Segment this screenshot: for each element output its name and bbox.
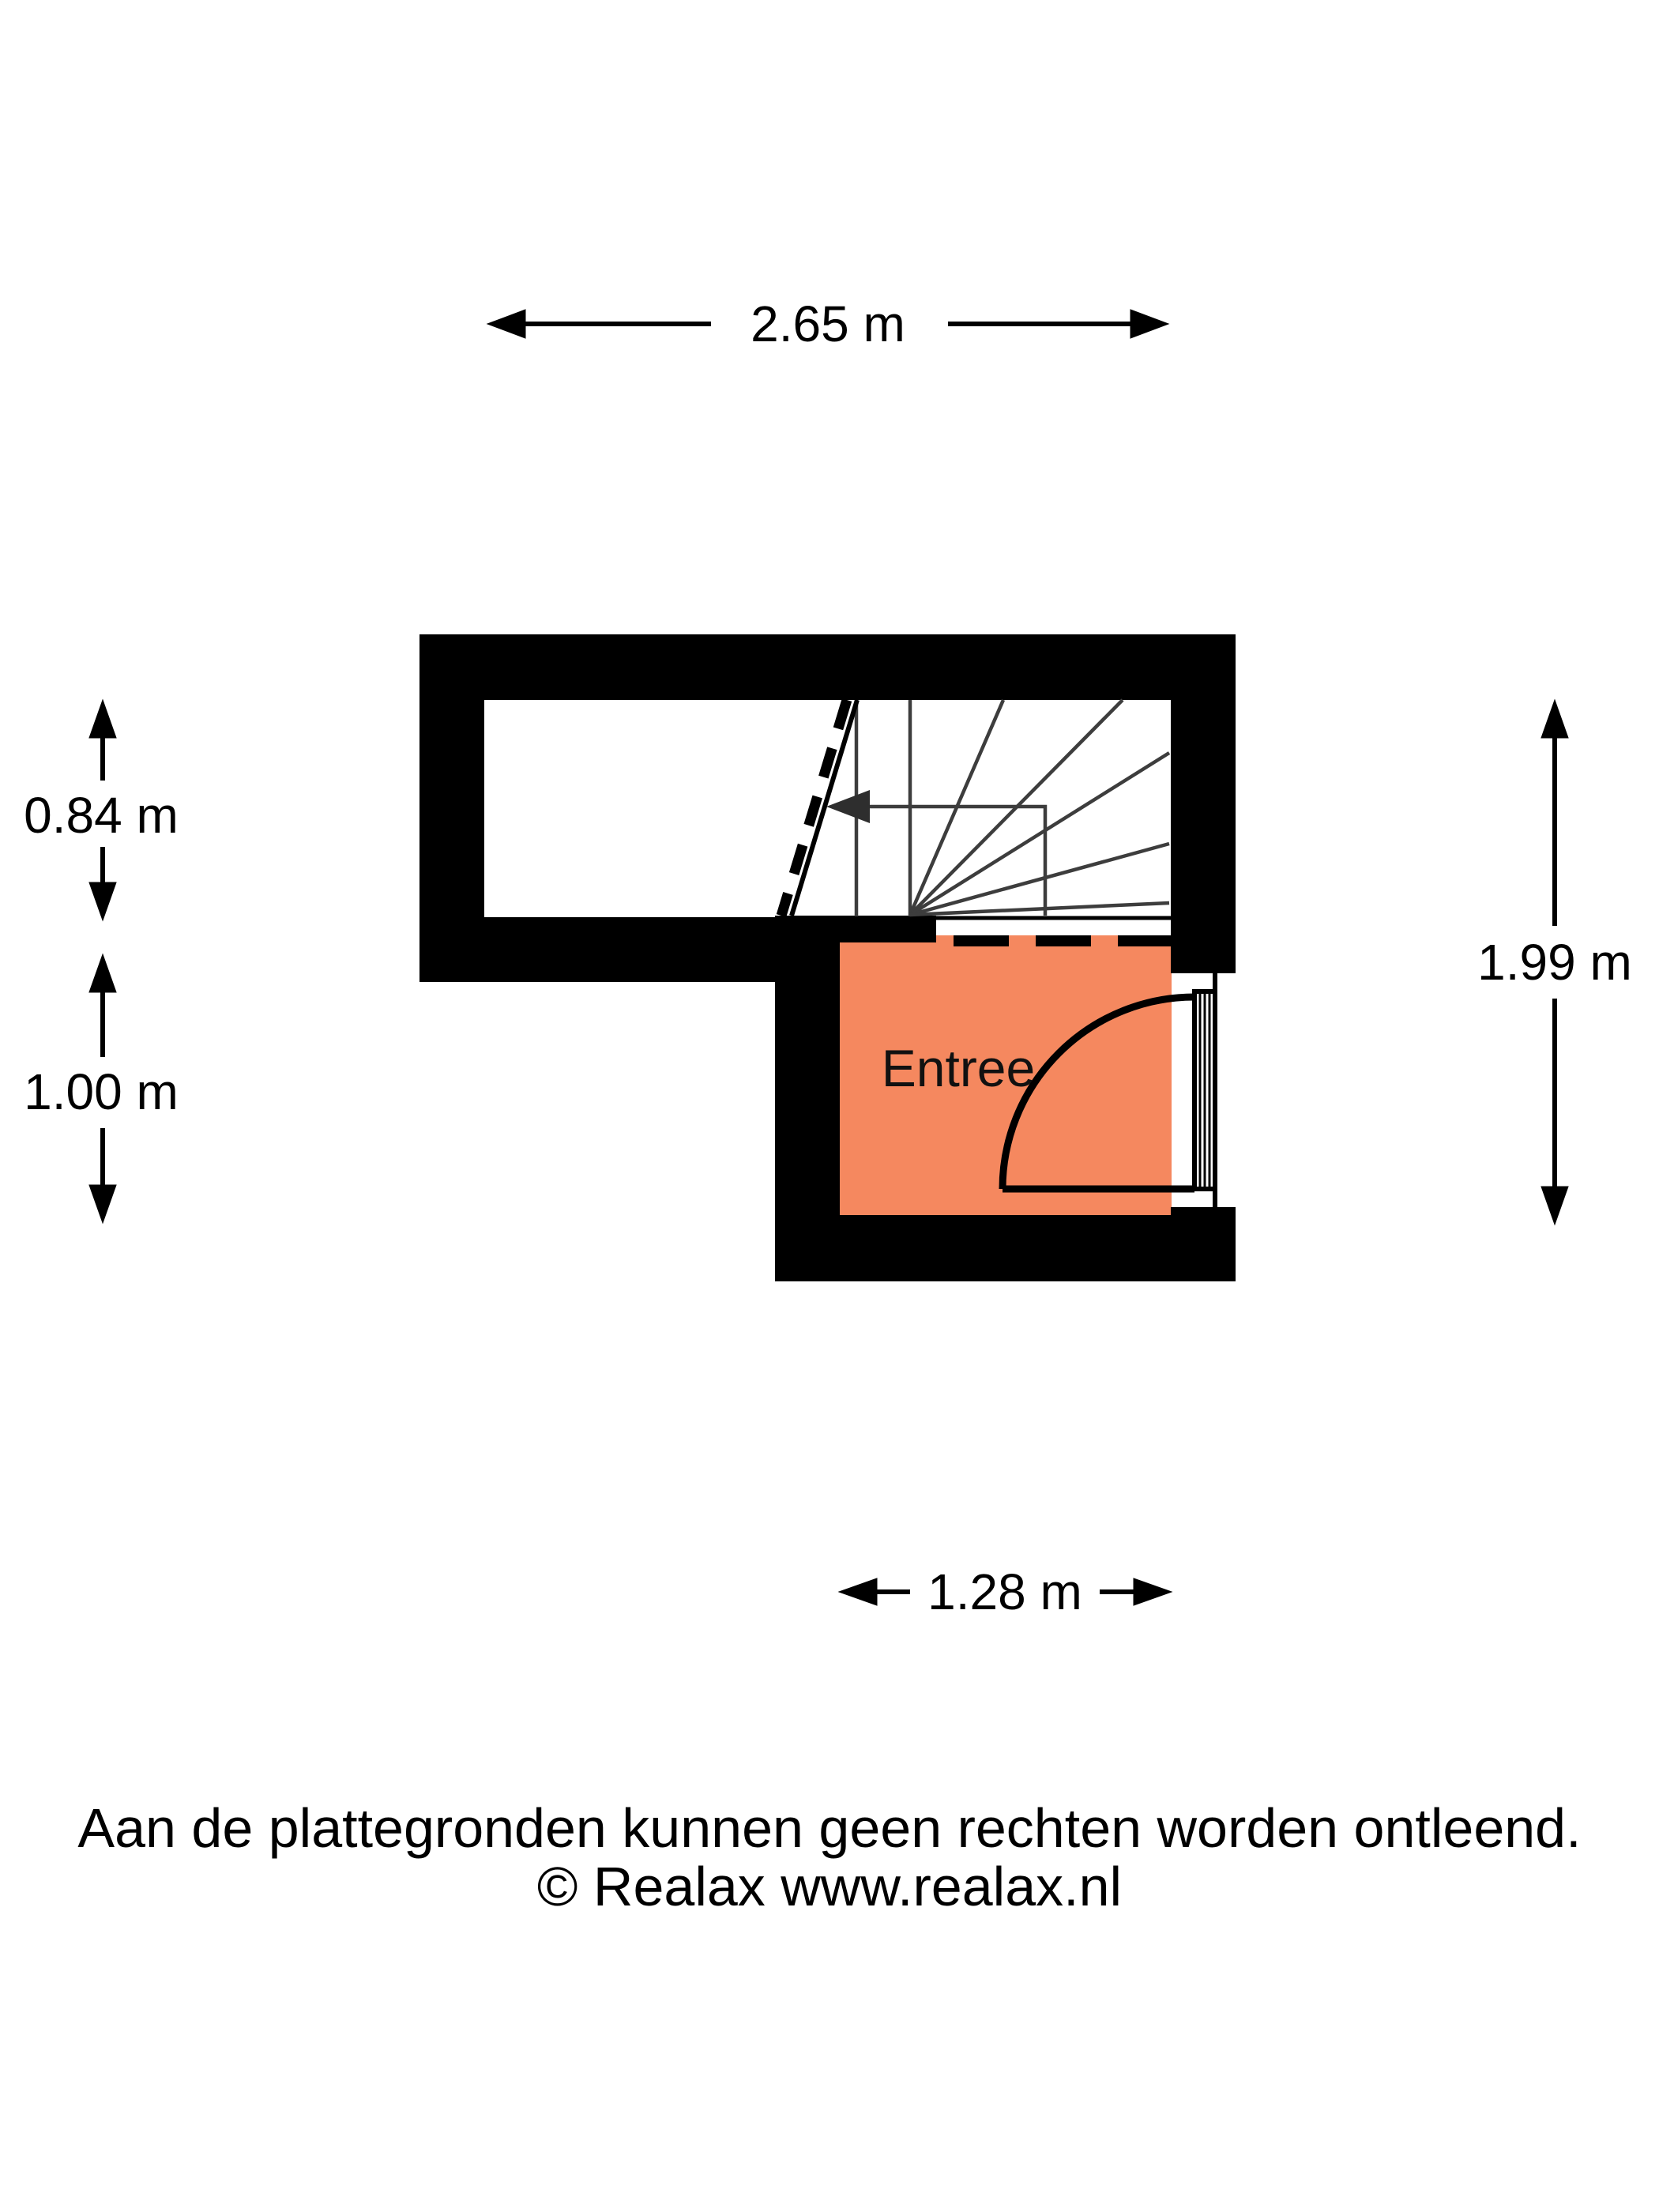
dim-right-arrowhead-down — [1541, 1187, 1568, 1224]
stair-winder-line-3 — [910, 753, 1169, 915]
dim-label-entree-depth: 1.00 m — [24, 1063, 179, 1121]
staircase — [856, 700, 1169, 916]
dim-left-upper-arrowhead-down — [89, 882, 116, 920]
footer-copyright: © Realax www.realax.nl — [0, 1855, 1659, 1918]
stair-walk-line — [863, 807, 1045, 916]
floorplan-page: 2.65 m 0.84 m 1.00 m 1.99 m 1.28 m Entre… — [0, 0, 1659, 2212]
wall-right-upper — [1171, 634, 1236, 973]
stair-direction-arrowhead — [826, 790, 870, 823]
dim-top-arrowhead-right — [1130, 310, 1168, 338]
dim-left-lower-arrowhead-down — [89, 1185, 116, 1223]
dim-right-arrowhead-up — [1541, 700, 1568, 738]
dim-bottom-arrowhead-right — [1134, 1578, 1172, 1605]
dim-label-top-width: 2.65 m — [750, 295, 905, 353]
wall-bottom — [775, 1215, 1236, 1281]
dim-left-upper-arrowhead-up — [89, 700, 116, 738]
room-label-entree: Entree — [882, 1038, 1035, 1098]
dim-left-lower-arrowhead-up — [89, 954, 116, 992]
wall-stair-threshold-left — [840, 916, 936, 942]
dim-label-stair-depth: 0.84 m — [24, 786, 179, 845]
dim-bottom-arrowhead-left — [839, 1578, 877, 1605]
dim-label-entree-width: 1.28 m — [927, 1563, 1082, 1621]
dim-top-arrowhead-left — [487, 310, 525, 338]
wall-top — [419, 634, 1236, 700]
footer-disclaimer: Aan de plattegronden kunnen geen rechten… — [0, 1796, 1659, 1860]
dim-label-right-height: 1.99 m — [1477, 933, 1632, 991]
wall-upper-room-bottom — [419, 917, 775, 982]
stair-threshold — [936, 918, 1171, 941]
